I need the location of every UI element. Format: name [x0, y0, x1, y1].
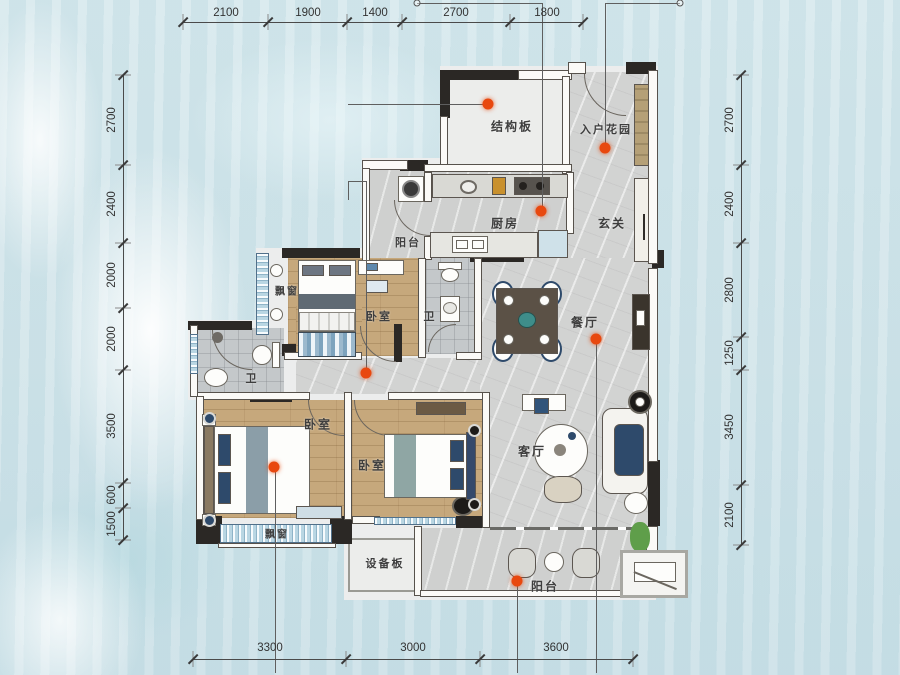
- wall: [330, 516, 352, 544]
- pillow: [218, 434, 231, 466]
- kitchen-sink-bowl: [472, 240, 484, 249]
- marker-dot-bedroom-left: [269, 462, 280, 473]
- dim-label: 2100: [213, 7, 239, 19]
- leader-line: [366, 181, 367, 372]
- toilet: [272, 342, 280, 368]
- wall: [474, 258, 482, 358]
- room-label-bay-window-top: 飘窗: [275, 283, 299, 298]
- dim-label: 2100: [724, 502, 736, 528]
- headboard: [204, 426, 214, 514]
- dim-label: 3600: [543, 642, 569, 654]
- wall: [414, 526, 422, 596]
- wall: [388, 392, 488, 400]
- marker-dot-corridor: [361, 368, 372, 379]
- vanity-desk: [358, 260, 404, 275]
- leader-line: [417, 3, 543, 4]
- leader-line: [348, 181, 366, 182]
- armchair: [544, 476, 582, 503]
- dim-label: 3000: [400, 642, 426, 654]
- leader-line: [605, 3, 606, 146]
- plate: [503, 295, 514, 306]
- foyer-cabinet: [634, 178, 649, 262]
- side-table: [366, 280, 388, 293]
- sofa-cushions: [614, 424, 644, 476]
- dimension-line-bottom: [193, 659, 633, 660]
- dimension-line-top: [183, 22, 583, 23]
- table-decor: [568, 432, 576, 440]
- dresser: [416, 402, 466, 415]
- marker-dot-dining: [591, 334, 602, 345]
- bath-left-window: [190, 334, 198, 374]
- room-label-kitchen: 厨房: [491, 215, 519, 232]
- room-label-entry-garden: 入户花园: [580, 121, 632, 137]
- wall: [344, 392, 352, 520]
- lamp-icon: [468, 424, 481, 437]
- toilet-bowl: [252, 345, 272, 365]
- bed-foot-bench: [299, 312, 355, 331]
- bed-runner: [299, 294, 355, 309]
- dim-label: 1250: [724, 340, 736, 366]
- pillow: [450, 468, 464, 490]
- dim-label: 1900: [295, 7, 321, 19]
- wall: [440, 70, 520, 80]
- cabinet-handle: [643, 214, 645, 240]
- table-decor: [554, 444, 566, 456]
- dim-label: 2700: [443, 7, 469, 19]
- dimension-line-right: [741, 75, 742, 545]
- leader-line: [348, 181, 349, 200]
- dim-label: 600: [106, 485, 118, 504]
- dim-label: 3450: [724, 414, 736, 440]
- bedroom-mid-window: [374, 517, 456, 525]
- dim-label: 2000: [106, 262, 118, 288]
- room-label-bath-left: 卫: [246, 370, 259, 386]
- dim-label: 2800: [724, 277, 736, 303]
- lounge-chair: [508, 548, 536, 578]
- marker-dot-kitchen: [536, 206, 547, 217]
- floor-plan-canvas: 结构板 入户花园 厨房 阳台 玄关 飘窗 卧室 卫 餐厅 卫 卧室 卧室 客厅 …: [0, 0, 900, 675]
- wall: [282, 248, 360, 258]
- refrigerator: [538, 230, 568, 258]
- kitchen-sink-bowl: [456, 240, 468, 249]
- leader-line: [542, 3, 543, 209]
- desk-chair: [534, 398, 549, 414]
- table-centerpiece: [518, 312, 536, 328]
- dim-label: 1400: [362, 7, 388, 19]
- lamp-icon: [203, 514, 216, 527]
- desk-tv-stand: [296, 506, 342, 519]
- plate: [503, 334, 514, 345]
- lamp-icon: [468, 498, 481, 511]
- wall: [568, 62, 586, 74]
- room-label-bath-top: 卫: [424, 308, 437, 324]
- lamp-icon: [203, 412, 216, 425]
- bath-sink: [204, 368, 228, 387]
- plate: [539, 334, 550, 345]
- dim-label: 2700: [724, 107, 736, 133]
- marker-dot-structural-slab: [483, 99, 494, 110]
- plant-icon: [630, 522, 650, 552]
- room-label-living: 客厅: [518, 443, 546, 460]
- pillow: [329, 265, 351, 276]
- room-label-bedroom-left: 卧室: [304, 416, 332, 433]
- wok-icon: [460, 180, 477, 194]
- wall: [482, 392, 490, 528]
- room-label-bedroom-top: 卧室: [366, 308, 392, 324]
- cabinet-detail: [636, 310, 645, 326]
- pillow: [302, 265, 324, 276]
- plate: [539, 295, 550, 306]
- dim-label: 2400: [106, 191, 118, 217]
- fan-center: [635, 397, 645, 407]
- dim-label: 3300: [257, 642, 283, 654]
- marker-dot-balcony: [512, 576, 523, 587]
- wardrobe-closet: [298, 332, 356, 357]
- wall: [196, 392, 310, 400]
- leader-line: [348, 104, 488, 105]
- room-label-balcony-bottom: 阳台: [531, 578, 559, 595]
- bed-runner: [394, 435, 416, 497]
- bay-stool: [270, 308, 283, 321]
- balcony-sliding-door: [490, 527, 648, 530]
- dim-label: 2400: [724, 191, 736, 217]
- room-label-structural-slab: 结构板: [491, 118, 533, 135]
- room-label-service-balcony: 阳台: [395, 234, 421, 250]
- bay-window-sill: [218, 543, 336, 548]
- bay-stool: [270, 264, 283, 277]
- wall: [648, 70, 658, 264]
- room-label-foyer: 玄关: [598, 215, 626, 232]
- entry-wardrobe: [634, 84, 649, 166]
- water-heater: [492, 177, 506, 195]
- room-label-dining: 餐厅: [571, 314, 599, 331]
- room-label-equipment-board: 设备板: [366, 555, 405, 571]
- shower-head-icon: [212, 332, 223, 343]
- vanity-items: [366, 263, 378, 271]
- dim-label: 1500: [106, 511, 118, 537]
- sink-bowl: [443, 302, 457, 314]
- leader-line: [605, 3, 680, 4]
- wall: [562, 76, 570, 174]
- bay-window-top: [256, 253, 269, 335]
- bed-runner: [246, 427, 268, 513]
- dim-label: 2700: [106, 107, 118, 133]
- pillow: [450, 440, 464, 462]
- dim-label: 3500: [106, 413, 118, 439]
- leader-end-circle: [414, 0, 421, 7]
- room-label-bedroom-mid: 卧室: [358, 457, 386, 474]
- dim-label: 1800: [534, 7, 560, 19]
- room-label-bay-window-bottom: 飘窗: [265, 526, 289, 541]
- hall-floor: [296, 358, 480, 394]
- wall: [424, 164, 572, 172]
- wall: [440, 70, 450, 118]
- pillow: [218, 472, 231, 504]
- toilet-bowl: [441, 268, 459, 282]
- washer-drum-icon: [402, 180, 420, 198]
- wall: [424, 172, 432, 202]
- side-table-round: [624, 492, 648, 514]
- wall: [648, 460, 660, 526]
- leader-line: [596, 340, 597, 673]
- balcony-table: [544, 552, 564, 572]
- marker-dot-entry-garden: [600, 143, 611, 154]
- wall: [456, 352, 482, 360]
- leader-end-circle: [677, 0, 684, 7]
- burner-icon: [519, 182, 527, 190]
- dim-label: 2000: [106, 326, 118, 352]
- headboard: [466, 432, 476, 500]
